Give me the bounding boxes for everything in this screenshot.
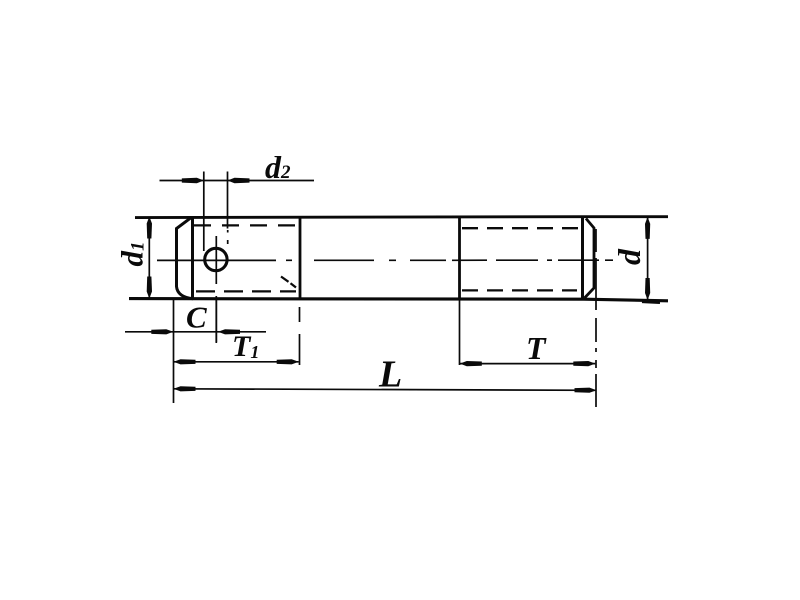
- svg-text:T: T: [526, 330, 547, 366]
- svg-text:C: C: [186, 300, 207, 335]
- svg-text:L: L: [378, 354, 402, 396]
- svg-text:d: d: [611, 248, 647, 265]
